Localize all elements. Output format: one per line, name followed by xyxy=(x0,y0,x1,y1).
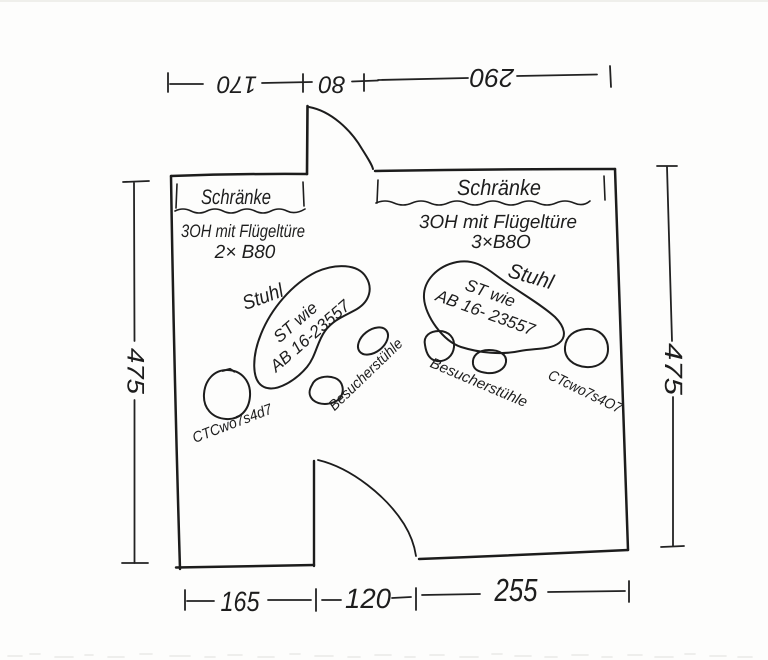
svg-text:Schränke: Schränke xyxy=(457,175,541,200)
svg-text:165: 165 xyxy=(221,586,260,617)
svg-text:2× B80: 2× B80 xyxy=(214,242,276,263)
svg-text:3OH mit Flügeltüre: 3OH mit Flügeltüre xyxy=(181,221,305,241)
svg-text:3OH mit Flügeltüre: 3OH mit Flügeltüre xyxy=(419,212,577,233)
svg-text:255: 255 xyxy=(494,572,538,608)
svg-text:Schränke: Schränke xyxy=(201,186,271,209)
svg-text:170: 170 xyxy=(216,71,257,98)
svg-text:120: 120 xyxy=(345,583,391,614)
svg-text:475: 475 xyxy=(122,348,149,395)
svg-text:80: 80 xyxy=(318,71,345,98)
svg-text:290: 290 xyxy=(469,63,515,93)
svg-text:3×B8O: 3×B8O xyxy=(471,232,531,253)
svg-text:475: 475 xyxy=(659,343,687,395)
